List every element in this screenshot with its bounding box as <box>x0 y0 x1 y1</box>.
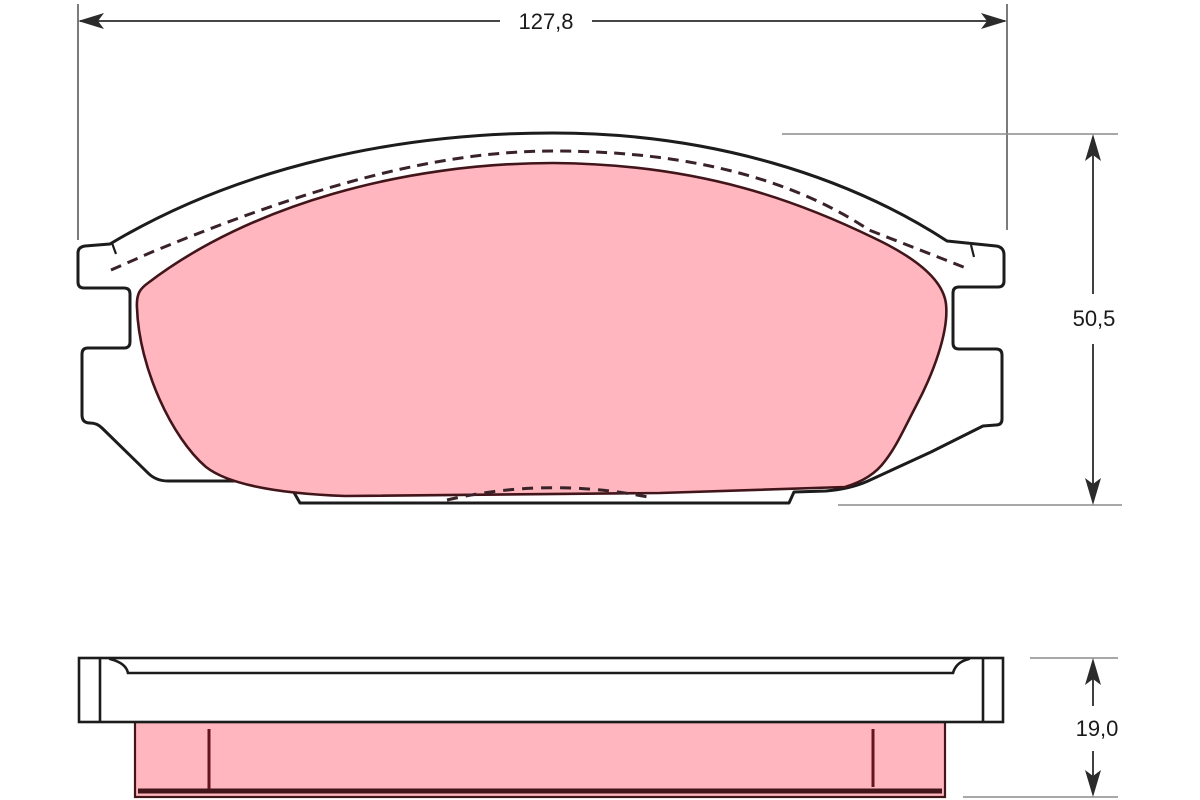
height-dimension-label: 50,5 <box>1073 306 1116 331</box>
top-view <box>78 133 1004 503</box>
brake-pad-technical-drawing: 127,8 50,5 19,0 <box>0 0 1200 800</box>
drawing-svg: 127,8 50,5 19,0 <box>0 0 1200 800</box>
width-dimension-label: 127,8 <box>518 9 573 34</box>
side-view <box>79 658 1003 797</box>
thickness-dimension-label: 19,0 <box>1076 716 1119 741</box>
side-friction-block <box>135 722 945 797</box>
side-backplate <box>79 658 1003 722</box>
